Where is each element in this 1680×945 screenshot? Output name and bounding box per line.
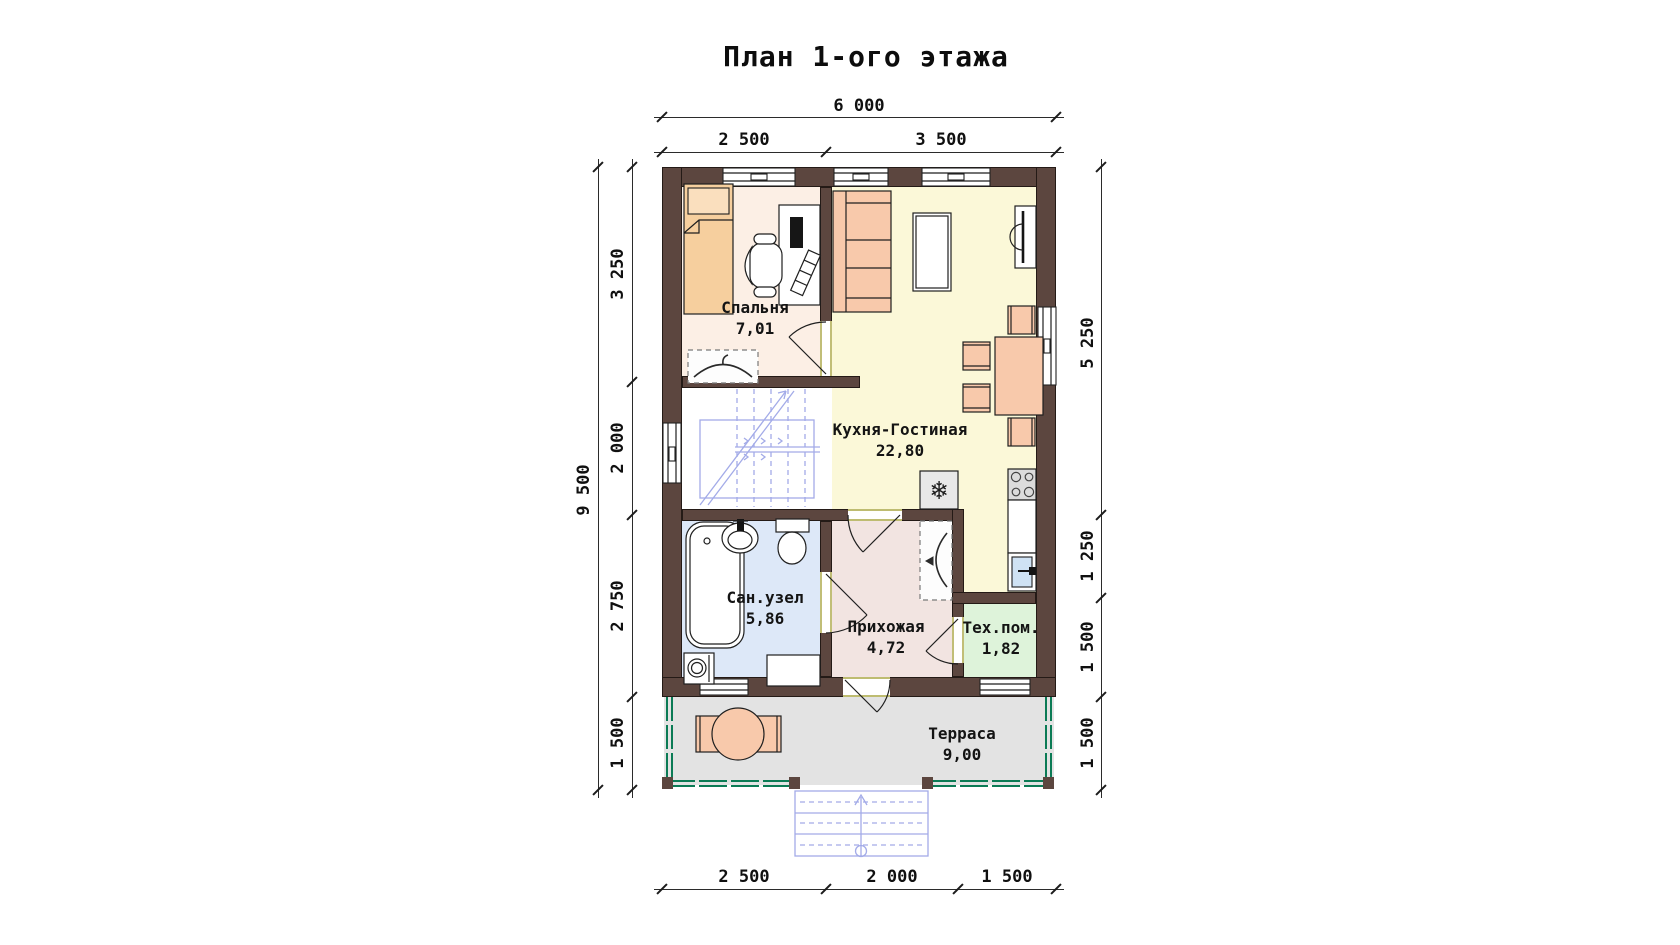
railing-post bbox=[662, 777, 673, 789]
staircase bbox=[700, 389, 820, 507]
wardrobe-hallway bbox=[920, 521, 952, 600]
room-area: 9,00 bbox=[872, 744, 1052, 765]
dimension-line-left-total bbox=[598, 159, 599, 798]
window-kitchen-top-2 bbox=[922, 168, 990, 186]
plan-detail-layer bbox=[0, 0, 1680, 945]
dim-left-seg-3: 2 750 bbox=[608, 566, 628, 646]
railing-post bbox=[1043, 777, 1054, 789]
room-label-kitchen: Кухня-Гостиная 22,80 bbox=[810, 419, 990, 461]
desk bbox=[779, 205, 820, 305]
dim-top-seg-1: 2 500 bbox=[704, 130, 784, 150]
dining-chair bbox=[963, 384, 990, 412]
room-label-tech: Тех.пом. 1,82 bbox=[911, 617, 1091, 659]
kitchen-sink bbox=[1008, 553, 1036, 591]
dining-chair bbox=[1008, 418, 1035, 446]
kitchen-counter bbox=[1008, 500, 1036, 553]
dim-right-seg-2: 1 250 bbox=[1078, 516, 1098, 596]
dimension-line-top-segments bbox=[654, 152, 1064, 153]
railing-post bbox=[922, 777, 933, 789]
dim-bottom-seg-1: 2 500 bbox=[704, 867, 784, 887]
room-label-terrace: Терраса 9,00 bbox=[872, 723, 1052, 765]
wardrobe-bedroom bbox=[688, 350, 758, 383]
dim-left-seg-1: 3 250 bbox=[608, 234, 628, 314]
bed bbox=[684, 184, 733, 314]
dim-bottom-seg-3: 1 500 bbox=[967, 867, 1047, 887]
window-kitchen-top-1 bbox=[834, 168, 888, 186]
window-tech-bottom bbox=[980, 679, 1030, 695]
room-name: Тех.пом. bbox=[911, 617, 1091, 638]
room-name: Кухня-Гостиная bbox=[810, 419, 990, 440]
room-name: Терраса bbox=[872, 723, 1052, 744]
coffee-table bbox=[913, 213, 951, 291]
dim-right-seg-1: 5 250 bbox=[1078, 303, 1098, 383]
room-area: 22,80 bbox=[810, 440, 990, 461]
room-area: 7,01 bbox=[665, 318, 845, 339]
dimension-line-top-total bbox=[654, 117, 1064, 118]
dim-bottom-seg-2: 2 000 bbox=[852, 867, 932, 887]
toilet bbox=[776, 519, 809, 564]
room-name: Спальня bbox=[665, 297, 845, 318]
tv-console bbox=[1010, 206, 1036, 268]
dim-top-seg-2: 3 500 bbox=[901, 130, 981, 150]
bath-cabinet bbox=[767, 655, 820, 686]
dim-left-seg-2: 2 000 bbox=[608, 408, 628, 488]
dim-left-total: 9 500 bbox=[574, 450, 594, 530]
window-bedroom-top bbox=[723, 168, 795, 186]
stove bbox=[1008, 469, 1036, 500]
snowflake-icon: ❄ bbox=[920, 471, 958, 509]
dining-table bbox=[995, 337, 1043, 415]
dim-top-total: 6 000 bbox=[819, 96, 899, 116]
dim-left-seg-4: 1 500 bbox=[608, 703, 628, 783]
entrance-steps bbox=[795, 791, 928, 857]
dim-right-seg-4: 1 500 bbox=[1078, 703, 1098, 783]
window-stairs-left bbox=[663, 423, 681, 483]
dimension-line-bottom bbox=[654, 889, 1064, 890]
office-chair bbox=[745, 234, 782, 297]
room-area: 1,82 bbox=[911, 638, 1091, 659]
floor-plan-canvas: План 1-ого этажа bbox=[0, 0, 1680, 945]
washing-machine bbox=[684, 653, 714, 684]
room-label-bedroom: Спальня 7,01 bbox=[665, 297, 845, 339]
sofa bbox=[833, 191, 891, 312]
room-name: Сан.узел bbox=[675, 587, 855, 608]
dimension-line-left-segments bbox=[632, 159, 633, 798]
dining-chair bbox=[1008, 306, 1035, 334]
railing-post bbox=[789, 777, 800, 789]
terrace-table bbox=[712, 708, 764, 760]
dimension-line-right-segments bbox=[1101, 159, 1102, 798]
dining-chair bbox=[963, 342, 990, 370]
dim-right-seg-3: 1 500 bbox=[1078, 607, 1098, 687]
